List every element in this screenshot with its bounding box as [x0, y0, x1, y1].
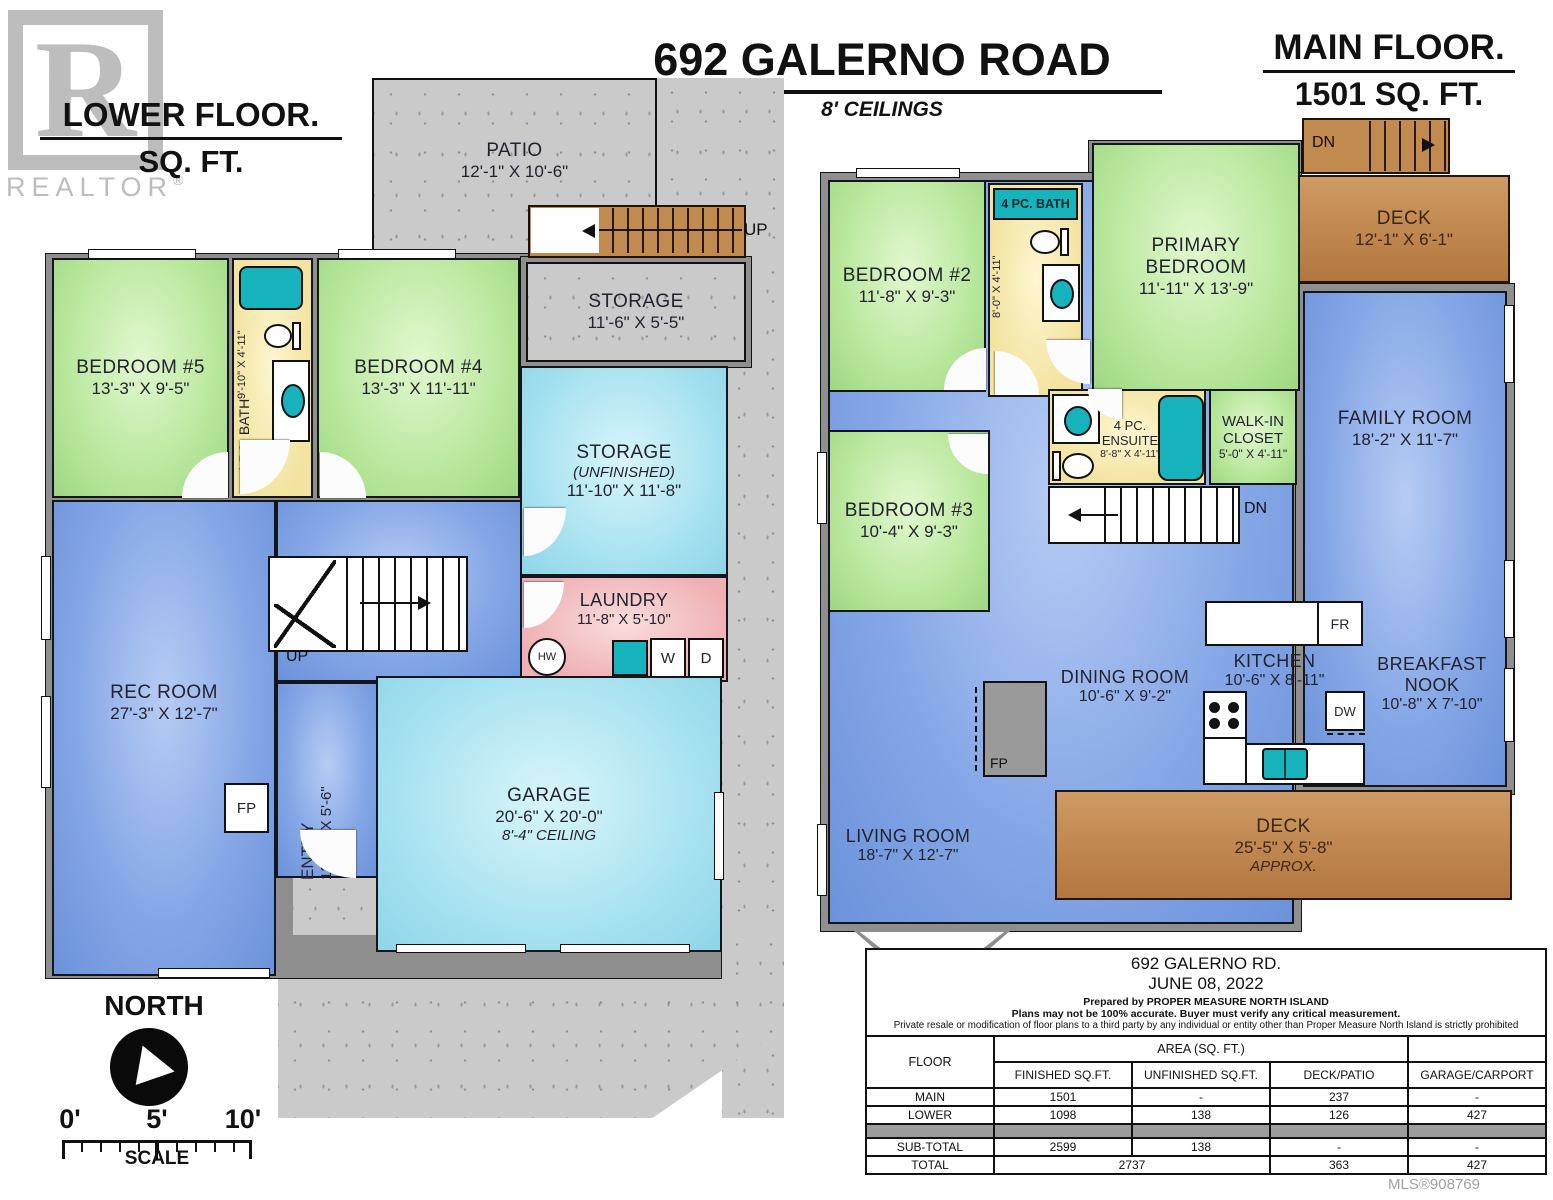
cell-total-deck: 363 — [1270, 1156, 1408, 1174]
main-stairs-dn — [1048, 486, 1240, 544]
kitchen-label: KITCHEN 10'-6" X 8'-11" — [1212, 648, 1337, 692]
bath-lower-dims: 9'-10" X 4'-11" — [236, 330, 252, 399]
primary-bedroom: PRIMARY BEDROOM 11'-11" X 13'-9" — [1092, 143, 1300, 391]
deck-bottom-dims: 25'-5" X 5'-8" — [1235, 838, 1333, 858]
toilet-main — [1030, 230, 1060, 254]
ensuite-name2: ENSUITE — [1102, 433, 1158, 448]
cell-lower-deck: 126 — [1270, 1106, 1408, 1124]
cell-lower-finished: 1098 — [994, 1106, 1132, 1124]
north-label: NORTH — [92, 990, 216, 1022]
table-row-spacer — [866, 1124, 1546, 1138]
col-header-unfinished: UNFINISHED SQ.FT. — [1132, 1062, 1270, 1088]
exterior-stairs-up — [528, 205, 746, 258]
dryer: D — [688, 638, 724, 678]
cell-main-deck: 237 — [1270, 1088, 1408, 1106]
walk-in-closet: WALK-IN CLOSET 5'-0" X 4'-11" — [1209, 389, 1297, 485]
main-floor-title: MAIN FLOOR. — [1263, 28, 1515, 73]
dishwasher: DW — [1325, 691, 1365, 731]
bedroom2-name: BEDROOM #2 — [843, 265, 972, 287]
dining-room-label: DINING ROOM 10'-6" X 9'-2" — [1050, 662, 1200, 710]
garage-name: GARAGE — [507, 785, 591, 807]
deck-bottom: DECK 25'-5" X 5'-8" APPROX. — [1055, 790, 1512, 900]
fridge: FR — [1317, 601, 1363, 646]
fridge-label: FR — [1331, 616, 1350, 632]
cell-main-garage: - — [1408, 1088, 1546, 1106]
garage-window — [714, 792, 724, 880]
cell-subtotal-finished: 2599 — [994, 1138, 1132, 1156]
main-stair-arrow — [1068, 508, 1081, 522]
living-room-label: LIVING ROOM 18'-7" X 12'-7" — [846, 820, 970, 870]
rec-window-lower — [41, 696, 51, 788]
dn-top-label: DN — [1312, 134, 1335, 152]
living-window — [817, 824, 827, 896]
dining-name: DINING ROOM — [1061, 667, 1189, 688]
scale-label: SCALE — [107, 1148, 207, 1170]
bath-main-name-box: 4 PC. BATH — [993, 188, 1078, 220]
family-room-label: FAMILY ROOM 18'-2" X 11'-7" — [1338, 408, 1473, 450]
lower-floor-sqft: SQ. FT. — [40, 144, 342, 180]
patio-name: PATIO — [461, 140, 568, 162]
nook-window — [1504, 668, 1514, 742]
cell-total-finished: 2737 — [994, 1156, 1270, 1174]
bedroom4-name: BEDROOM #4 — [354, 357, 483, 379]
family-window-lower — [1504, 560, 1514, 638]
patio-label: PATIO 12'-1" X 10'-6" — [461, 140, 568, 182]
compass-arrow — [136, 1046, 178, 1092]
deck-bottom-approx: APPROX. — [1250, 858, 1317, 875]
washer: W — [650, 638, 686, 678]
interior-stair-arrow — [418, 596, 431, 610]
bedroom4-window — [338, 249, 456, 259]
dryer-label: D — [701, 650, 712, 667]
bedroom3-window — [817, 452, 827, 524]
garage-ceiling: 8'-4" CEILING — [502, 827, 596, 844]
washer-label: W — [661, 650, 675, 667]
main-stair-arrow-shaft — [1078, 514, 1118, 516]
sink-main — [1042, 264, 1080, 322]
entry-walkway — [293, 875, 383, 935]
laundry-door — [524, 582, 564, 628]
patio-dims: 12'-1" X 10'-6" — [461, 162, 568, 182]
stair-mid-line — [599, 229, 742, 231]
storage-exterior-room: STORAGE 11'-6" X 5'-5" — [526, 262, 746, 362]
cell-lower-unfinished: 138 — [1132, 1106, 1270, 1124]
table-prepared: Prepared by PROPER MEASURE NORTH ISLAND — [873, 996, 1539, 1008]
dishwasher-label: DW — [1334, 704, 1356, 719]
storage-ext-dims: 11'-6" X 5'-5" — [588, 313, 685, 333]
bedroom4-dims: 13'-3" X 11'-11" — [361, 379, 475, 399]
toilet-lower — [264, 324, 292, 348]
deck-top-name: DECK — [1377, 208, 1431, 230]
fireplace-main: FP — [983, 681, 1047, 777]
storage-unf-dims: 11'-10" X 11'-8" — [567, 481, 681, 501]
table-disclaimer-1: Plans may not be 100% accurate. Buyer mu… — [873, 1008, 1539, 1020]
garage: GARAGE 20'-6" X 20'-0" 8'-4" CEILING — [376, 676, 722, 952]
storage-unf-name: STORAGE — [576, 442, 671, 464]
cell-subtotal-unfinished: 138 — [1132, 1138, 1270, 1156]
rec-window-upper — [41, 556, 51, 640]
storage-unfinished: STORAGE (UNFINISHED) 11'-10" X 11'-8" — [520, 366, 728, 576]
fireplace-dashed-edge — [975, 687, 977, 771]
nook-name2: NOOK — [1405, 675, 1460, 696]
scale-end-tick-left — [62, 1143, 65, 1159]
table-address: 692 GALERNO RD. — [873, 954, 1539, 974]
rec-room-name: REC ROOM — [110, 682, 218, 704]
col-header-area: AREA (SQ. FT.) — [994, 1036, 1408, 1062]
bedroom5-window — [88, 249, 196, 259]
col-header-garage: GARAGE/CARPORT — [1408, 1062, 1546, 1088]
ensuite-dims: 8'-8" X 4'-11" — [1100, 448, 1160, 460]
table-row-main: MAIN 1501 - 237 - — [866, 1088, 1546, 1106]
kitchen-name: KITCHEN — [1234, 651, 1316, 672]
rec-window-bottom — [158, 968, 270, 978]
scale-tick-0: 0' — [50, 1104, 90, 1135]
cell-main-finished: 1501 — [994, 1088, 1132, 1106]
bath-main-dims: 8'-0" X 4'-11" — [991, 227, 1003, 347]
stair-arrow — [582, 224, 595, 238]
cell-lower-garage: 427 — [1408, 1106, 1546, 1124]
family-room-name: FAMILY ROOM — [1338, 408, 1473, 430]
bedroom2-window — [856, 168, 960, 178]
table-date: JUNE 08, 2022 — [873, 974, 1539, 994]
ensuite-toilet-tank — [1052, 451, 1061, 481]
col-header-finished: FINISHED SQ.FT. — [994, 1062, 1132, 1088]
bath-lower-door — [240, 440, 290, 494]
closet-dims: 5'-0" X 4'-11" — [1219, 447, 1287, 461]
laundry-sink — [612, 640, 648, 676]
interior-stairs — [268, 556, 468, 652]
fireplace-lower: FP — [224, 783, 269, 833]
north-compass-icon — [104, 1022, 194, 1112]
stair-arrow-shaft — [360, 602, 420, 604]
bedroom5-name: BEDROOM #5 — [76, 357, 205, 379]
primary-dims: 11'-11" X 13'-9" — [1139, 279, 1253, 299]
dishwasher-dashed-line — [1327, 733, 1365, 735]
ensuite-sink-basin — [1064, 406, 1092, 436]
nook-name1: BREAKFAST — [1377, 654, 1487, 675]
col-header-floor: FLOOR — [866, 1036, 994, 1088]
area-info-table: 692 GALERNO RD. JUNE 08, 2022 Prepared b… — [865, 948, 1547, 1175]
bath-main-door — [995, 351, 1039, 395]
cell-subtotal-garage: - — [1408, 1138, 1546, 1156]
closet-name2: CLOSET — [1223, 430, 1283, 447]
cell-subtotal-deck: - — [1270, 1138, 1408, 1156]
main-floor-sqft: 1501 SQ. FT. — [1263, 76, 1515, 113]
ensuite-tub — [1158, 395, 1204, 481]
kitchen-sink — [1262, 748, 1308, 780]
table-row-lower: LOWER 1098 138 126 427 — [866, 1106, 1546, 1124]
bath-main-name: 4 PC. BATH — [1001, 197, 1070, 211]
bedroom5-dims: 13'-3" X 9'-5" — [92, 379, 190, 399]
table-disclaimer-2: Private resale or modification of floor … — [873, 1020, 1539, 1031]
fp-lower-label: FP — [237, 800, 256, 817]
toilet-tank-lower — [292, 322, 301, 350]
cell-main-floor: MAIN — [866, 1088, 994, 1106]
garage-door-2 — [560, 944, 690, 953]
hot-water-tank: HW — [528, 638, 566, 676]
cell-lower-floor: LOWER — [866, 1106, 994, 1124]
storage-unf-sub: (UNFINISHED) — [573, 464, 675, 481]
living-name: LIVING ROOM — [846, 826, 970, 847]
rec-room: REC ROOM 27'-3" X 12'-7" — [52, 500, 276, 976]
cell-total-garage: 427 — [1408, 1156, 1546, 1174]
stove — [1203, 691, 1247, 739]
bedroom3-name: BEDROOM #3 — [845, 500, 974, 522]
primary-name2: BEDROOM — [1146, 257, 1247, 279]
cell-main-unfinished: - — [1132, 1088, 1270, 1106]
rec-room-label: REC ROOM 27'-3" X 12'-7" — [110, 682, 218, 724]
laundry: LAUNDRY 11'-8" X 5'-10" HW W D — [520, 576, 728, 682]
stove-burners — [1209, 702, 1242, 729]
family-room-dims: 18'-2" X 11'-7" — [1338, 430, 1473, 450]
table-row-subtotal: SUB-TOTAL 2599 138 - - — [866, 1138, 1546, 1156]
deck-bottom-name: DECK — [1256, 816, 1310, 838]
ensuite-toilet — [1062, 453, 1094, 479]
sink-basin-main — [1050, 279, 1074, 309]
scale-end-tick-right — [249, 1143, 252, 1159]
up-exterior-label: UP — [744, 220, 768, 240]
sink-lower — [272, 360, 310, 442]
dn-stairs-label: DN — [1244, 500, 1267, 518]
garage-dims: 20'-6" X 20'-0" — [495, 807, 602, 827]
table-row-total: TOTAL 2737 363 427 — [866, 1156, 1546, 1174]
col-header-deck: DECK/PATIO — [1270, 1062, 1408, 1088]
nook-dims: 10'-8" X 7'-10" — [1381, 696, 1482, 714]
primary-name1: PRIMARY — [1151, 235, 1240, 257]
toilet-tank-main — [1060, 228, 1069, 256]
breakfast-nook-label: BREAKFAST NOOK 10'-8" X 7'-10" — [1368, 650, 1496, 718]
ensuite-name1: 4 PC. — [1114, 418, 1147, 433]
hw-label: HW — [538, 651, 556, 663]
bedroom3-dims: 10'-4" X 9'-3" — [860, 522, 958, 542]
living-dims: 18'-7" X 12'-7" — [857, 847, 958, 865]
floor-plan-canvas: R REALTOR® LOWER FLOOR. SQ. FT. 692 GALE… — [0, 0, 1553, 1200]
sink-basin-lower — [281, 384, 305, 418]
deck-top: DECK 12'-1" X 6'-1" — [1298, 175, 1510, 283]
cell-subtotal-label: SUB-TOTAL — [866, 1138, 994, 1156]
family-window-upper — [1504, 305, 1514, 383]
deck-top-stairs: DN — [1302, 118, 1450, 174]
scale-tick-10: 10' — [218, 1104, 268, 1135]
kitchen-dims: 10'-6" X 8'-11" — [1225, 672, 1325, 690]
deck-stair-arrow — [1422, 138, 1435, 152]
laundry-label: LAUNDRY 11'-8" X 5'-10" — [577, 590, 671, 628]
storage-ext-name: STORAGE — [588, 291, 683, 313]
bedroom2-dims: 11'-8" X 9'-3" — [859, 287, 956, 307]
stair-winder-line2 — [274, 604, 336, 648]
laundry-name: LAUNDRY — [577, 590, 671, 611]
mls-number: MLS®908769 — [1388, 1176, 1480, 1193]
bath-lower: 4 PC. BATH 9'-10" X 4'-11" — [232, 258, 313, 498]
bathtub-lower — [239, 266, 303, 310]
col-header-garage-spacer — [1408, 1036, 1546, 1062]
scale-tick-5: 5' — [137, 1104, 177, 1135]
kitchen-sink-divider — [1284, 750, 1286, 778]
dining-dims: 10'-6" X 9'-2" — [1079, 688, 1171, 706]
storage-unf-door — [524, 508, 566, 556]
ensuite: 4 PC. ENSUITE 8'-8" X 4'-11" — [1048, 389, 1206, 485]
rec-room-dims: 27'-3" X 12'-7" — [110, 704, 218, 724]
garage-door-1 — [396, 944, 526, 953]
lower-floor-title: LOWER FLOOR. — [40, 96, 342, 140]
interior-stair-treads — [332, 558, 468, 650]
laundry-dims: 11'-8" X 5'-10" — [577, 611, 671, 628]
closet-name1: WALK-IN — [1222, 413, 1284, 430]
cell-total-label: TOTAL — [866, 1156, 994, 1174]
fp-main-label: FP — [990, 755, 1008, 771]
deck-top-dims: 12'-1" X 6'-1" — [1355, 230, 1453, 250]
